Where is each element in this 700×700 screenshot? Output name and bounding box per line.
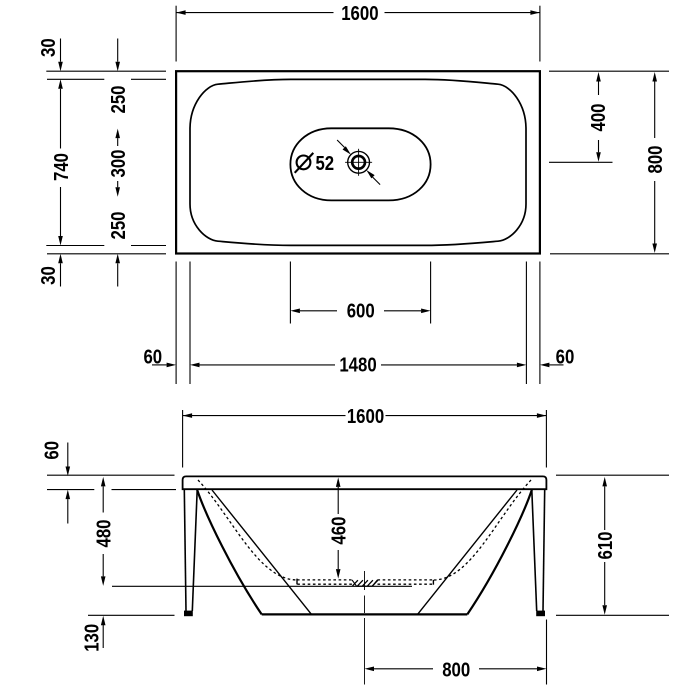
svg-text:740: 740 — [50, 153, 73, 181]
svg-text:460: 460 — [327, 517, 350, 545]
svg-text:30: 30 — [37, 266, 60, 285]
svg-text:130: 130 — [80, 624, 103, 652]
svg-text:60: 60 — [143, 345, 162, 368]
svg-text:30: 30 — [37, 38, 60, 57]
svg-text:1480: 1480 — [339, 353, 376, 376]
svg-text:600: 600 — [347, 299, 375, 322]
svg-text:480: 480 — [92, 519, 115, 547]
svg-text:60: 60 — [556, 345, 575, 368]
svg-text:60: 60 — [40, 441, 63, 460]
svg-text:400: 400 — [587, 103, 610, 131]
svg-text:300: 300 — [107, 149, 130, 177]
svg-text:610: 610 — [594, 531, 617, 559]
svg-text:250: 250 — [107, 211, 130, 239]
svg-text:1600: 1600 — [341, 2, 378, 25]
svg-text:800: 800 — [442, 658, 470, 681]
svg-text:52: 52 — [315, 151, 334, 174]
svg-text:1600: 1600 — [347, 405, 384, 428]
svg-text:250: 250 — [107, 85, 130, 113]
svg-text:800: 800 — [644, 145, 667, 173]
